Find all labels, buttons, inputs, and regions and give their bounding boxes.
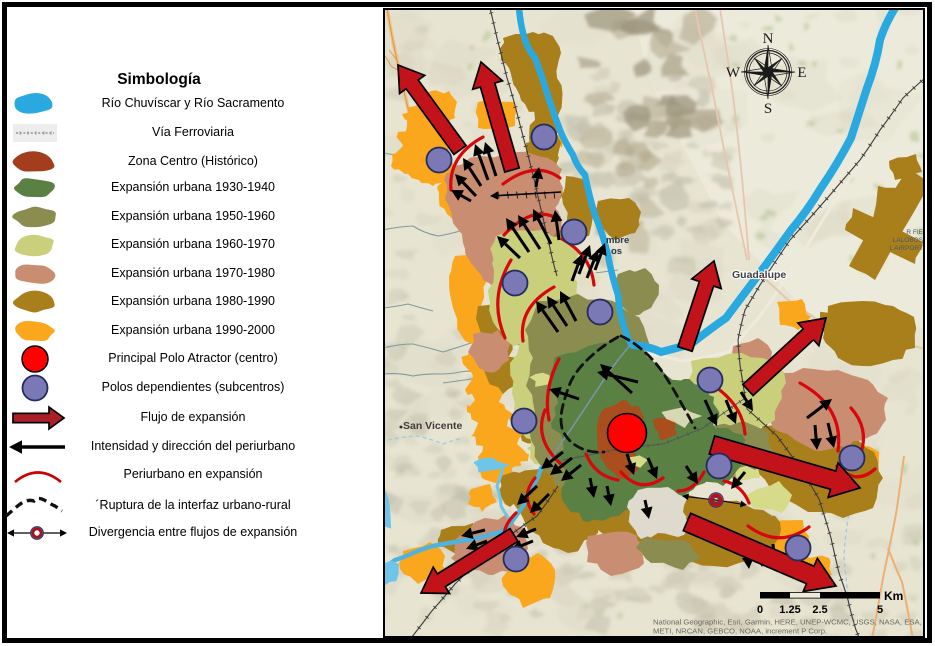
svg-text:San Vicente: San Vicente: [403, 420, 462, 432]
svg-text:Km: Km: [884, 589, 903, 603]
svg-text:W: W: [726, 65, 741, 81]
svg-text:METI, NRCAN, GEBCO, NOAA, incr: METI, NRCAN, GEBCO, NOAA, increment P Co…: [653, 627, 827, 636]
svg-text:L AIRPORT: L AIRPORT: [889, 245, 923, 252]
svg-text:N: N: [763, 31, 774, 47]
svg-text:os: os: [611, 246, 622, 257]
svg-text:1.25: 1.25: [779, 604, 800, 616]
svg-text:National Geographic, Esri, Gar: National Geographic, Esri, Garmin, HERE,…: [653, 618, 922, 627]
svg-text:S: S: [764, 101, 772, 117]
svg-text:mbre: mbre: [606, 235, 629, 246]
svg-text:5: 5: [877, 604, 883, 616]
svg-text:E: E: [797, 65, 806, 81]
svg-text:LALOBOS: LALOBOS: [893, 237, 924, 244]
svg-text:Guadalupe: Guadalupe: [732, 269, 786, 281]
svg-text:R FIE: R FIE: [906, 229, 923, 236]
svg-text:0: 0: [757, 604, 763, 616]
svg-text:2.5: 2.5: [812, 604, 827, 616]
